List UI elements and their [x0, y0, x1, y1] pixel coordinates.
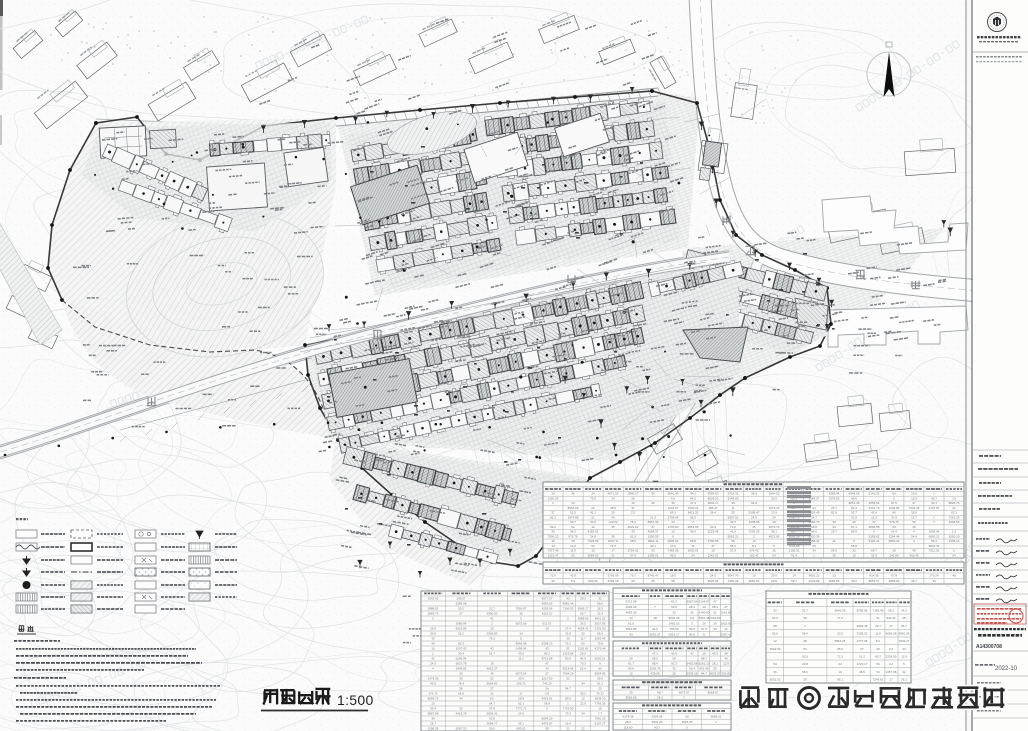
- svg-text:5107.27: 5107.27: [595, 721, 606, 725]
- svg-text:5339.16: 5339.16: [687, 671, 698, 675]
- svg-text:26: 26: [611, 511, 615, 515]
- svg-text:80.3: 80.3: [565, 656, 571, 660]
- svg-text:19: 19: [591, 549, 595, 553]
- svg-text:9660.01: 9660.01: [749, 579, 760, 583]
- svg-text:48.5: 48.5: [859, 670, 865, 674]
- svg-text:59.6: 59.6: [831, 549, 837, 553]
- svg-text:1500.59: 1500.59: [648, 535, 659, 539]
- svg-text:13.7: 13.7: [911, 516, 917, 520]
- svg-text:7261.23: 7261.23: [949, 516, 960, 520]
- svg-text:5661.21: 5661.21: [728, 535, 739, 539]
- svg-text:30: 30: [566, 636, 570, 640]
- svg-text:8977.97: 8977.97: [542, 596, 553, 600]
- svg-text:53: 53: [892, 525, 896, 529]
- svg-text:64.0: 64.0: [772, 616, 778, 620]
- svg-text:8119.10: 8119.10: [542, 611, 553, 615]
- svg-text:3217.50: 3217.50: [542, 676, 553, 680]
- svg-text:A14300708: A14300708: [976, 644, 1002, 650]
- svg-text:31: 31: [691, 544, 695, 548]
- svg-text:4568.37: 4568.37: [648, 530, 659, 534]
- svg-text:5131.73: 5131.73: [869, 506, 880, 510]
- svg-text:21: 21: [591, 516, 595, 520]
- svg-text:25: 25: [731, 511, 735, 515]
- svg-text:439.08: 439.08: [650, 671, 660, 675]
- svg-text:32.1: 32.1: [650, 544, 656, 548]
- svg-text:9051.07: 9051.07: [650, 632, 661, 636]
- svg-text:45: 45: [490, 671, 494, 675]
- svg-text:61.5: 61.5: [628, 621, 634, 625]
- svg-text:24.5: 24.5: [518, 711, 524, 715]
- svg-text:890.94: 890.94: [588, 579, 598, 583]
- svg-text:9429.61: 9429.61: [542, 696, 553, 700]
- svg-text:9547.76: 9547.76: [728, 574, 739, 578]
- svg-text:2197.87: 2197.87: [929, 506, 940, 510]
- svg-text:82.2: 82.2: [544, 651, 550, 655]
- svg-text:9902.11: 9902.11: [648, 539, 659, 543]
- svg-text:39: 39: [551, 530, 555, 534]
- svg-text:27.4: 27.4: [565, 626, 571, 630]
- svg-text:72.3: 72.3: [837, 655, 843, 659]
- svg-text:53.8: 53.8: [489, 716, 495, 720]
- svg-text:7090.12: 7090.12: [548, 535, 559, 539]
- svg-text:66.6: 66.6: [851, 497, 857, 501]
- svg-text:32: 32: [459, 706, 463, 710]
- svg-text:13: 13: [431, 701, 435, 705]
- svg-text:32: 32: [852, 549, 856, 553]
- svg-text:58: 58: [773, 624, 777, 628]
- svg-text:24: 24: [545, 666, 549, 670]
- svg-text:25.6: 25.6: [771, 574, 777, 578]
- svg-text:6864.25: 6864.25: [835, 639, 846, 643]
- svg-text:94.7: 94.7: [565, 686, 571, 690]
- svg-text:5308.23: 5308.23: [542, 641, 553, 645]
- svg-text:69.7: 69.7: [657, 690, 663, 694]
- svg-text:16: 16: [490, 661, 494, 665]
- svg-text:8556.68: 8556.68: [626, 695, 637, 699]
- svg-text:22: 22: [591, 506, 595, 510]
- svg-text:15.4: 15.4: [565, 721, 571, 725]
- svg-text:48: 48: [952, 574, 956, 578]
- svg-text:7293.39: 7293.39: [749, 530, 760, 534]
- svg-text:66.9: 66.9: [851, 530, 857, 534]
- svg-text:1323.86: 1323.86: [563, 651, 574, 655]
- svg-text:8046.98: 8046.98: [516, 641, 527, 645]
- svg-text:41: 41: [832, 539, 836, 543]
- svg-text:18.0: 18.0: [911, 511, 917, 515]
- svg-text:12: 12: [581, 696, 585, 700]
- svg-text:65.6: 65.6: [730, 544, 736, 548]
- svg-text:38.6: 38.6: [751, 492, 757, 496]
- svg-text:35.1: 35.1: [518, 721, 524, 725]
- svg-text:7770.71: 7770.71: [516, 706, 527, 710]
- svg-text:52.7: 52.7: [802, 609, 808, 613]
- svg-text:64.6: 64.6: [751, 501, 757, 505]
- svg-text:50: 50: [876, 662, 880, 666]
- svg-text:24: 24: [691, 554, 695, 558]
- svg-text:76.3: 76.3: [630, 574, 636, 578]
- svg-text:6407.48: 6407.48: [699, 616, 710, 620]
- svg-text:32: 32: [611, 554, 615, 558]
- svg-text:24.4: 24.4: [891, 530, 897, 534]
- svg-text:2057.86: 2057.86: [595, 621, 606, 625]
- svg-text:66.1: 66.1: [837, 678, 843, 682]
- svg-text:9350.50: 9350.50: [487, 611, 498, 615]
- svg-text:10: 10: [431, 646, 435, 650]
- svg-text:3946.17: 3946.17: [628, 492, 639, 496]
- svg-text:4.6: 4.6: [671, 497, 676, 501]
- svg-text:35: 35: [672, 666, 676, 670]
- svg-text:38.9: 38.9: [630, 539, 636, 543]
- svg-text:82.9: 82.9: [831, 511, 837, 515]
- svg-text:3846.17: 3846.17: [708, 501, 719, 505]
- svg-text:24.9: 24.9: [751, 516, 757, 520]
- svg-text:141.04: 141.04: [889, 554, 899, 558]
- svg-text:39: 39: [803, 678, 807, 682]
- svg-text:12.9: 12.9: [901, 655, 907, 659]
- svg-text:30: 30: [832, 520, 836, 524]
- svg-text:3545.65: 3545.65: [428, 596, 439, 600]
- svg-text:51.7: 51.7: [489, 651, 495, 655]
- svg-text:12.2: 12.2: [570, 544, 576, 548]
- svg-text:10: 10: [752, 574, 756, 578]
- svg-text:47: 47: [690, 651, 694, 655]
- svg-text:81.3: 81.3: [550, 516, 556, 520]
- svg-text:52: 52: [571, 525, 575, 529]
- svg-text:10: 10: [838, 670, 842, 674]
- svg-text:2105.31: 2105.31: [789, 549, 800, 553]
- svg-text:32: 32: [773, 609, 777, 613]
- svg-text:3195.22: 3195.22: [857, 632, 868, 636]
- svg-text:8.3: 8.3: [752, 544, 757, 548]
- svg-text:60: 60: [581, 641, 585, 645]
- svg-text:7186.49: 7186.49: [873, 609, 884, 613]
- svg-text:46: 46: [651, 579, 655, 583]
- svg-text:1530.01: 1530.01: [688, 506, 699, 510]
- svg-text:3373.73: 3373.73: [769, 525, 780, 529]
- svg-text:59.3: 59.3: [931, 539, 937, 543]
- svg-text:31: 31: [490, 691, 494, 695]
- svg-text:1507.02: 1507.02: [456, 646, 467, 650]
- svg-text:7004.83: 7004.83: [710, 616, 721, 620]
- svg-text:9633.07: 9633.07: [710, 671, 721, 675]
- svg-text:3237.11: 3237.11: [608, 539, 619, 543]
- svg-text:11.1: 11.1: [518, 656, 524, 660]
- svg-text:89.5: 89.5: [652, 656, 658, 660]
- svg-text:45.0: 45.0: [670, 554, 676, 558]
- svg-text:34: 34: [812, 549, 816, 553]
- svg-text:70.3: 70.3: [580, 661, 586, 665]
- svg-text:82.4: 82.4: [851, 506, 857, 510]
- svg-text:13: 13: [629, 616, 633, 620]
- svg-text:73.0: 73.0: [730, 525, 736, 529]
- svg-text:5.0: 5.0: [571, 579, 576, 583]
- svg-text:31.8: 31.8: [851, 516, 857, 520]
- svg-text:92.6: 92.6: [802, 655, 808, 659]
- svg-text:914.36: 914.36: [869, 574, 879, 578]
- svg-text:6492.08: 6492.08: [687, 661, 698, 665]
- svg-text:23.7: 23.7: [831, 530, 837, 534]
- svg-text:34.3: 34.3: [901, 609, 907, 613]
- svg-text:9573.97: 9573.97: [679, 690, 690, 694]
- svg-text:4831.22: 4831.22: [595, 616, 606, 620]
- svg-text:79.0: 79.0: [590, 497, 596, 501]
- svg-text:12: 12: [591, 525, 595, 529]
- svg-text:59: 59: [803, 616, 807, 620]
- svg-text:37: 37: [631, 506, 635, 510]
- svg-text:2022-10: 2022-10: [995, 666, 1018, 672]
- svg-text:47.1: 47.1: [652, 651, 658, 655]
- svg-text:2093.43: 2093.43: [595, 636, 606, 640]
- svg-text:47: 47: [651, 525, 655, 529]
- svg-text:1645.82: 1645.82: [456, 666, 467, 670]
- svg-text:9303.96: 9303.96: [652, 715, 663, 719]
- svg-text:92.1: 92.1: [518, 701, 524, 705]
- svg-text:36: 36: [611, 535, 615, 539]
- svg-text:611.57: 611.57: [543, 621, 552, 625]
- svg-text:9313.80: 9313.80: [626, 627, 637, 631]
- svg-text:65.9: 65.9: [597, 631, 603, 635]
- svg-text:8.2: 8.2: [876, 639, 881, 643]
- svg-text:7106.93: 7106.93: [563, 606, 574, 610]
- svg-text:45: 45: [876, 647, 880, 651]
- svg-text:14: 14: [792, 574, 796, 578]
- svg-text:8026.52: 8026.52: [708, 497, 719, 501]
- svg-text:1499.94: 1499.94: [516, 646, 527, 650]
- svg-text:23: 23: [571, 501, 575, 505]
- svg-text:6179.38: 6179.38: [623, 715, 634, 719]
- svg-text:28.4: 28.4: [689, 605, 695, 609]
- svg-text:10.2: 10.2: [837, 632, 843, 636]
- svg-text:2839.33: 2839.33: [595, 696, 606, 700]
- svg-text:42.7: 42.7: [931, 497, 937, 501]
- svg-text:51.2: 51.2: [859, 655, 865, 659]
- svg-text:474.42: 474.42: [749, 549, 759, 553]
- svg-text:60: 60: [892, 492, 896, 496]
- svg-text:50.2: 50.2: [458, 606, 464, 610]
- svg-text:9476.87: 9476.87: [542, 721, 553, 725]
- svg-text:30.1: 30.1: [931, 501, 937, 505]
- svg-text:9334.85: 9334.85: [595, 671, 606, 675]
- svg-text:6783.18: 6783.18: [608, 579, 619, 583]
- svg-text:7769.35: 7769.35: [595, 701, 606, 705]
- svg-text:5891.56: 5891.56: [899, 632, 910, 636]
- svg-text:94.1: 94.1: [690, 492, 696, 496]
- svg-text:66.9: 66.9: [458, 691, 464, 695]
- svg-text:1673.16: 1673.16: [769, 506, 780, 510]
- svg-text:72.6: 72.6: [550, 574, 556, 578]
- svg-text:1457.96: 1457.96: [886, 670, 897, 674]
- svg-text:8745.47: 8745.47: [648, 574, 659, 578]
- svg-text:5666.17: 5666.17: [578, 606, 589, 610]
- svg-text:83.0: 83.0: [565, 696, 571, 700]
- svg-text:30: 30: [459, 671, 463, 675]
- svg-text:76.1: 76.1: [901, 678, 907, 682]
- svg-text:25.7: 25.7: [831, 506, 837, 510]
- svg-text:12: 12: [752, 539, 756, 543]
- svg-text:976.76: 976.76: [568, 535, 578, 539]
- svg-text:24.8: 24.8: [590, 535, 596, 539]
- svg-text:34: 34: [581, 711, 585, 715]
- svg-text:49.7: 49.7: [730, 520, 736, 524]
- svg-text:25: 25: [629, 690, 633, 694]
- svg-text:4389.94: 4389.94: [829, 492, 840, 496]
- svg-text:68.9: 68.9: [712, 605, 718, 609]
- svg-text:6075.56: 6075.56: [516, 621, 527, 625]
- svg-text:7469.35: 7469.35: [668, 549, 679, 553]
- svg-text:98.5: 98.5: [690, 516, 696, 520]
- svg-text:1.2: 1.2: [952, 530, 957, 534]
- svg-text:35: 35: [611, 525, 615, 529]
- svg-text:8981.46: 8981.46: [563, 601, 574, 605]
- svg-text:23.7: 23.7: [875, 624, 881, 628]
- svg-text:5712.38: 5712.38: [626, 600, 637, 604]
- svg-text:18: 18: [653, 616, 657, 620]
- svg-text:16: 16: [702, 651, 706, 655]
- svg-text:26: 26: [672, 656, 676, 660]
- svg-text:69.6: 69.6: [597, 601, 603, 605]
- svg-text:6015.27: 6015.27: [487, 666, 498, 670]
- svg-text:4822.92: 4822.92: [769, 535, 780, 539]
- svg-text:24.5: 24.5: [710, 574, 716, 578]
- svg-text:1295.91: 1295.91: [648, 554, 659, 558]
- svg-text:35: 35: [752, 525, 756, 529]
- svg-text:12: 12: [629, 671, 633, 675]
- svg-text:32.5: 32.5: [771, 497, 777, 501]
- svg-text:54: 54: [772, 554, 776, 558]
- svg-text:82.6: 82.6: [772, 632, 778, 636]
- svg-text:28.3: 28.3: [580, 596, 586, 600]
- svg-text:6660.21: 6660.21: [929, 535, 940, 539]
- svg-text:19: 19: [711, 549, 715, 553]
- svg-text:52.2: 52.2: [458, 631, 464, 635]
- svg-text:198.07: 198.07: [456, 596, 466, 600]
- svg-text:25: 25: [571, 539, 575, 543]
- svg-text:53: 53: [571, 554, 575, 558]
- svg-text:34: 34: [581, 681, 585, 685]
- svg-text:9593.63: 9593.63: [708, 492, 719, 496]
- svg-text:5645.28: 5645.28: [835, 609, 846, 613]
- svg-text:14: 14: [611, 497, 615, 501]
- svg-text:23: 23: [952, 497, 956, 501]
- svg-text:62.7: 62.7: [580, 611, 586, 615]
- svg-text:26: 26: [631, 497, 635, 501]
- svg-text:46: 46: [571, 492, 575, 496]
- svg-text:91.4: 91.4: [791, 554, 797, 558]
- svg-text:45: 45: [651, 501, 655, 505]
- svg-text:4416.79: 4416.79: [456, 711, 467, 715]
- svg-text:31.9: 31.9: [597, 611, 603, 615]
- svg-text:57: 57: [490, 686, 494, 690]
- svg-text:376.73: 376.73: [428, 691, 438, 695]
- svg-text:60: 60: [685, 715, 689, 719]
- svg-text:42: 42: [566, 596, 570, 600]
- svg-text:8826.73: 8826.73: [949, 501, 960, 505]
- svg-text:58.0: 58.0: [802, 670, 808, 674]
- svg-text:52.6: 52.6: [689, 627, 695, 631]
- svg-text:39: 39: [431, 716, 435, 720]
- svg-text:2754.31: 2754.31: [628, 549, 639, 553]
- svg-text:32: 32: [551, 579, 555, 583]
- svg-text:52.5: 52.5: [570, 511, 576, 515]
- svg-text:2630.01: 2630.01: [688, 549, 699, 553]
- svg-text:44: 44: [611, 516, 615, 520]
- svg-text:36: 36: [773, 670, 777, 674]
- svg-text:5923.85: 5923.85: [456, 626, 467, 630]
- svg-text:43: 43: [629, 632, 633, 636]
- svg-text:62.4: 62.4: [580, 666, 586, 670]
- svg-text:9287.41: 9287.41: [721, 632, 732, 636]
- svg-text:2.2: 2.2: [631, 511, 636, 515]
- svg-text:1044.67: 1044.67: [668, 506, 679, 510]
- svg-text:59.7: 59.7: [791, 579, 797, 583]
- svg-text:5841.49: 5841.49: [668, 492, 679, 496]
- svg-text:57.3: 57.3: [701, 627, 707, 631]
- svg-text:42: 42: [490, 646, 494, 650]
- svg-text:2331.90: 2331.90: [595, 626, 606, 630]
- svg-text:87.6: 87.6: [891, 501, 897, 505]
- svg-text:42: 42: [852, 520, 856, 524]
- svg-text:7511.30: 7511.30: [929, 549, 940, 553]
- svg-text:3944.52: 3944.52: [769, 492, 780, 496]
- svg-text:3642.50: 3642.50: [770, 647, 781, 651]
- svg-text:7248.61: 7248.61: [873, 678, 884, 682]
- svg-text:37: 37: [551, 511, 555, 515]
- svg-text:7377.49: 7377.49: [548, 549, 559, 553]
- svg-text:84.7: 84.7: [701, 671, 707, 675]
- svg-text:2006.83: 2006.83: [487, 631, 498, 635]
- svg-text:37: 37: [872, 520, 876, 524]
- svg-text:7246.45: 7246.45: [909, 506, 920, 510]
- svg-text:4276.44: 4276.44: [595, 646, 606, 650]
- svg-text:81.7: 81.7: [628, 661, 634, 665]
- svg-text:6444.20: 6444.20: [652, 720, 663, 724]
- svg-text:2160.53: 2160.53: [548, 497, 559, 501]
- svg-text:5126.41: 5126.41: [869, 539, 880, 543]
- svg-text:92.3: 92.3: [671, 661, 677, 665]
- svg-text:64.6: 64.6: [811, 530, 817, 534]
- svg-text:25: 25: [713, 666, 717, 670]
- svg-text:31: 31: [566, 726, 570, 730]
- svg-text:67.9: 67.9: [891, 574, 897, 578]
- svg-text:78.4: 78.4: [458, 681, 464, 685]
- svg-text:6950.65: 6950.65: [542, 601, 553, 605]
- svg-text:57: 57: [860, 647, 864, 651]
- svg-text:93.7: 93.7: [851, 511, 857, 515]
- svg-text:4453.35: 4453.35: [626, 611, 637, 615]
- svg-text:34: 34: [832, 525, 836, 529]
- svg-text:60: 60: [598, 666, 602, 670]
- svg-text:2888.51: 2888.51: [428, 606, 439, 610]
- svg-text:5631.52: 5631.52: [770, 678, 781, 682]
- svg-text:9058.01: 9058.01: [711, 715, 722, 719]
- svg-text:24: 24: [838, 662, 842, 666]
- svg-text:1095.65: 1095.65: [829, 579, 840, 583]
- svg-text:22: 22: [581, 726, 585, 730]
- svg-text:58: 58: [545, 726, 549, 730]
- svg-text:17: 17: [519, 691, 523, 695]
- svg-text:30.9: 30.9: [458, 651, 464, 655]
- svg-text:162.41: 162.41: [749, 554, 759, 558]
- svg-text:23.8: 23.8: [771, 579, 777, 583]
- svg-text:40: 40: [431, 641, 435, 645]
- svg-text:683.91: 683.91: [516, 726, 526, 730]
- svg-text:25.0: 25.0: [430, 626, 436, 630]
- svg-text:10: 10: [551, 539, 555, 543]
- svg-text:2626.76: 2626.76: [650, 666, 661, 670]
- svg-text:4790.55: 4790.55: [708, 539, 719, 543]
- svg-text:77.3: 77.3: [837, 616, 843, 620]
- svg-text:61.3: 61.3: [597, 681, 603, 685]
